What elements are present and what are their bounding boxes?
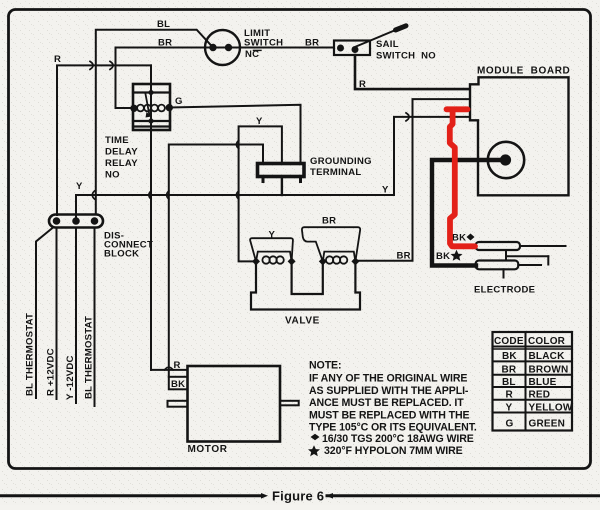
svg-text:BR: BR bbox=[322, 216, 336, 227]
svg-text:R +12VDC: R +12VDC bbox=[46, 348, 57, 396]
svg-text:AS SUPPLIED WITH THE APPLI-: AS SUPPLIED WITH THE APPLI- bbox=[309, 385, 469, 397]
svg-text:Y -12VDC: Y -12VDC bbox=[65, 355, 76, 400]
svg-text:YELLOW: YELLOW bbox=[529, 403, 573, 414]
svg-text:SAIL: SAIL bbox=[376, 39, 399, 50]
svg-text:BL THERMOSTAT: BL THERMOSTAT bbox=[25, 313, 36, 396]
svg-text:G: G bbox=[506, 419, 514, 430]
svg-text:BR: BR bbox=[305, 38, 319, 49]
svg-text:BLACK: BLACK bbox=[529, 351, 566, 362]
svg-text:GREEN: GREEN bbox=[529, 419, 566, 430]
svg-text:SWITCH: SWITCH bbox=[244, 38, 283, 49]
svg-text:TYPE 105°C OR ITS EQUIVALENT.: TYPE 105°C OR ITS EQUIVALENT. bbox=[309, 422, 477, 434]
svg-text:Y: Y bbox=[76, 181, 83, 192]
svg-text:RED: RED bbox=[529, 390, 551, 401]
svg-text:BK: BK bbox=[502, 351, 517, 362]
svg-text:TERMINAL: TERMINAL bbox=[310, 167, 361, 178]
svg-text:SWITCH NO: SWITCH NO bbox=[376, 51, 436, 62]
svg-text:Y: Y bbox=[506, 403, 513, 414]
svg-text:CODE: CODE bbox=[494, 336, 524, 347]
svg-text:MOTOR: MOTOR bbox=[188, 444, 228, 455]
svg-text:MUST BE REPLACED WITH THE: MUST BE REPLACED WITH THE bbox=[309, 409, 470, 421]
svg-text:ELECTRODE: ELECTRODE bbox=[474, 285, 535, 296]
svg-text:BK: BK bbox=[436, 251, 450, 262]
svg-text:R: R bbox=[54, 54, 61, 65]
svg-text:TIME: TIME bbox=[105, 135, 129, 146]
svg-text:COLOR: COLOR bbox=[528, 336, 566, 347]
svg-text:Y: Y bbox=[269, 230, 276, 241]
svg-text:BR: BR bbox=[397, 251, 411, 262]
svg-text:BR: BR bbox=[502, 364, 517, 375]
svg-text:Y: Y bbox=[382, 185, 389, 196]
svg-text:R: R bbox=[359, 79, 366, 90]
svg-text:BLOCK: BLOCK bbox=[104, 249, 139, 260]
svg-text:VALVE: VALVE bbox=[285, 316, 320, 327]
svg-text:Figure 6: Figure 6 bbox=[272, 489, 324, 504]
svg-text:R: R bbox=[174, 360, 181, 371]
svg-text:BL: BL bbox=[157, 19, 170, 30]
svg-text:BR: BR bbox=[158, 38, 172, 49]
svg-text:MODULE BOARD: MODULE BOARD bbox=[477, 66, 570, 77]
svg-text:G: G bbox=[175, 96, 183, 107]
svg-text:BK: BK bbox=[452, 233, 466, 244]
svg-text:DELAY: DELAY bbox=[105, 147, 138, 158]
svg-text:BK: BK bbox=[171, 379, 185, 390]
svg-text:16/30 TGS 200°C 18AWG WIRE: 16/30 TGS 200°C 18AWG WIRE bbox=[322, 433, 474, 445]
svg-text:ANCE MUST BE REPLACED. IT: ANCE MUST BE REPLACED. IT bbox=[309, 397, 464, 409]
svg-text:BL THERMOSTAT: BL THERMOSTAT bbox=[84, 316, 95, 399]
svg-text:NO: NO bbox=[105, 170, 120, 181]
svg-text:IF ANY OF THE ORIGINAL WIRE: IF ANY OF THE ORIGINAL WIRE bbox=[309, 373, 467, 385]
svg-text:NOTE:: NOTE: bbox=[309, 360, 341, 372]
svg-text:R: R bbox=[506, 390, 514, 401]
svg-text:BROWN: BROWN bbox=[529, 364, 569, 375]
svg-text:BLUE: BLUE bbox=[529, 377, 557, 388]
svg-text:GROUNDING: GROUNDING bbox=[310, 156, 372, 167]
svg-text:RELAY: RELAY bbox=[105, 158, 138, 169]
svg-text:320°F HYPOLON 7MM WIRE: 320°F HYPOLON 7MM WIRE bbox=[324, 445, 463, 457]
svg-text:BL: BL bbox=[502, 377, 516, 388]
svg-text:Y: Y bbox=[256, 116, 263, 127]
